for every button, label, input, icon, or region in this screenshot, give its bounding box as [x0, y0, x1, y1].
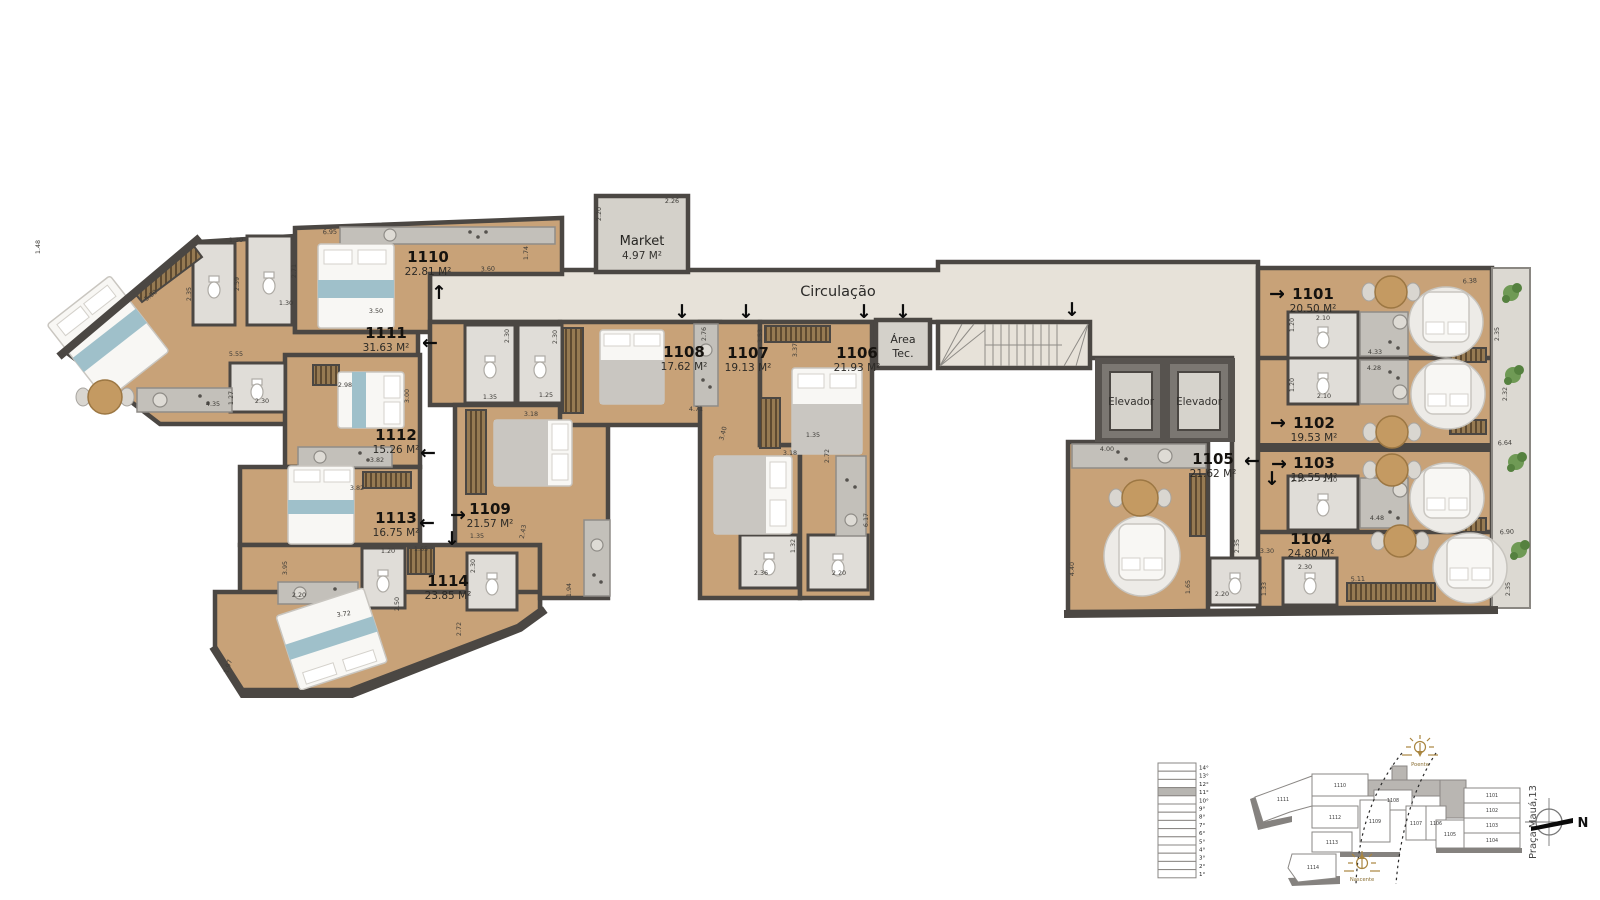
dimension-label: 4.71: [689, 405, 703, 413]
up-arrow: ↑: [431, 282, 447, 304]
dimension-label: 3.18: [783, 449, 797, 457]
unit-area-1102: 19.53 M²: [1291, 432, 1338, 444]
sun-nascente-label: Nascente: [1350, 877, 1374, 883]
staircase: [938, 322, 1090, 368]
unit-area-1105: 21.62 M²: [1190, 468, 1237, 480]
round-bed-1103: [1410, 463, 1484, 533]
unit-area-1113: 16.75 M²: [373, 527, 420, 539]
keyplan-unit-1108: 1108: [1387, 798, 1399, 804]
dimension-label: 2.76: [700, 327, 708, 341]
unit-number-1106: 1106: [836, 344, 878, 362]
dimension-label: 2.26: [665, 197, 679, 205]
down-arrow: ↓: [674, 301, 690, 323]
dimension-label: 2.20: [1215, 590, 1229, 598]
dimension-label: 4.28: [1367, 364, 1381, 372]
unit-area-1109: 21.57 M²: [467, 518, 514, 530]
dimension-label: 4.40: [1068, 562, 1076, 576]
dimension-label: 1.35: [483, 393, 497, 401]
area-tec-label-line2: Tec.: [891, 347, 913, 360]
dimension-label: 1.25: [539, 391, 553, 399]
unit-number-1102: 1102: [1293, 414, 1335, 432]
dimension-label: 2.20: [292, 591, 306, 599]
dimension-label: 2.30: [1298, 563, 1312, 571]
dimension-label: 1.30: [279, 299, 293, 307]
floor-row-label-5°: 5°: [1199, 839, 1205, 845]
keyplan-unit-1106: 1106: [1430, 821, 1442, 827]
left-arrow: ←: [1244, 450, 1260, 472]
bed-1106: [792, 368, 862, 454]
unit-area-1108: 17.62 M²: [661, 361, 708, 373]
keyplan-unit-1101: 1101: [1486, 793, 1498, 799]
dimension-label: 6.64: [1498, 439, 1513, 448]
unit-number-1103: 1103: [1293, 454, 1335, 472]
dimension-label: 2.71: [290, 264, 298, 278]
dimension-label: 2.10: [1317, 392, 1331, 400]
keyplan-unit-1107: 1107: [1410, 821, 1422, 827]
market-area-label: 4.97 M²: [622, 250, 662, 262]
compass-north-label: N: [1578, 816, 1589, 831]
dimension-label: 4.00: [1100, 445, 1114, 453]
dimension-label: 2.10: [1316, 314, 1330, 322]
floor-row-label-8°: 8°: [1199, 815, 1205, 821]
elevator-label-1: Elevador: [1108, 396, 1155, 408]
dimension-label: 3.37: [791, 343, 799, 357]
right-arrow: →: [450, 504, 466, 526]
floor-row-label-13°: 13°: [1199, 774, 1209, 780]
down-arrow: ↓: [856, 301, 872, 323]
unit-area-1107: 19.13 M²: [725, 362, 772, 374]
dimension-label: 1.20: [381, 547, 395, 555]
floor-row-8°: [1158, 812, 1196, 820]
dimension-label: 6.17: [862, 513, 870, 527]
floor-plan-page: 111022.81 M²111131.63 M²111215.26 M²1113…: [0, 0, 1600, 900]
dimension-label: 3.18: [524, 410, 538, 418]
dimension-label: 2.32: [1501, 387, 1509, 401]
round-bed-1102: [1411, 359, 1485, 429]
dimension-label: 3.82: [350, 484, 364, 492]
down-arrow: ↓: [895, 301, 911, 323]
dimension-label: 2.98: [338, 381, 352, 389]
floor-row-2°: [1158, 861, 1196, 869]
dimension-label: 1.65: [414, 545, 428, 553]
floor-row-10°: [1158, 796, 1196, 804]
circulation-label: Circulação: [800, 284, 876, 300]
keyplan-unit-1103: 1103: [1486, 823, 1498, 829]
floor-row-label-3°: 3°: [1199, 856, 1205, 862]
unit-number-1113: 1113: [375, 509, 417, 527]
dimension-label: 2.20: [595, 207, 603, 221]
left-arrow: ←: [422, 332, 438, 354]
floor-row-14°: [1158, 763, 1196, 771]
dimension-label: 1.48: [34, 240, 42, 254]
dimension-label: 2.10: [1323, 476, 1337, 484]
floor-plan-drawing: 111022.81 M²111131.63 M²111215.26 M²1113…: [0, 0, 1600, 900]
floor-row-label-2°: 2°: [1199, 864, 1205, 870]
floor-row-label-11°: 11°: [1199, 790, 1209, 796]
dimension-label: 2.35: [1233, 539, 1241, 553]
dimension-label: 3.60: [481, 265, 496, 274]
dimension-label: 2.10: [1291, 476, 1305, 484]
floor-row-label-1°: 1°: [1199, 872, 1205, 878]
unit-area-1114: 23.85 M²: [425, 590, 472, 602]
floor-stack: 14°13°12°11°10°9°8°7°6°5°4°3°2°1°: [1158, 763, 1209, 878]
dimension-label: 3.30: [1260, 547, 1274, 555]
down-arrow: ↓: [738, 301, 754, 323]
unit-number-1109: 1109: [469, 500, 511, 518]
floor-row-7°: [1158, 820, 1196, 828]
right-arrow: →: [1270, 412, 1286, 434]
dimension-label: 1.20: [1288, 318, 1296, 332]
keyplan: [1250, 753, 1522, 886]
keyplan-unit-1102: 1102: [1486, 808, 1498, 814]
floor-row-9°: [1158, 804, 1196, 812]
floor-row-label-6°: 6°: [1199, 831, 1205, 837]
floor-row-3°: [1158, 853, 1196, 861]
keyplan-unit-1112: 1112: [1329, 815, 1341, 821]
dimension-label: 3.50: [369, 307, 383, 315]
unit-number-1112: 1112: [375, 426, 417, 444]
dimension-label: 5.11: [1351, 575, 1366, 584]
unit-area-1112: 15.26 M²: [373, 444, 420, 456]
unit-area-1111: 31.63 M²: [363, 342, 410, 354]
dimension-label: 1.32: [789, 539, 797, 553]
dimension-label: 3.82: [370, 456, 384, 464]
dimension-label: 2.35: [1504, 582, 1512, 596]
market-label: Market: [620, 234, 665, 249]
dimension-label: 2.30: [255, 397, 269, 405]
area-tec-label-line1: Área: [890, 333, 915, 346]
keyplan-unit-1109: 1109: [1369, 819, 1381, 825]
dimension-label: 2.72: [455, 622, 463, 636]
dimension-label: 6.95: [323, 228, 338, 236]
unit-number-1104: 1104: [1290, 530, 1332, 548]
floor-row-11°: [1158, 788, 1196, 796]
unit-number-1107: 1107: [727, 344, 769, 362]
bed-1109: [494, 420, 572, 486]
floor-row-13°: [1158, 771, 1196, 779]
dimension-label: 1.94: [565, 583, 573, 597]
dimension-label: 2.30: [551, 330, 559, 344]
keyplan-unit-1104: 1104: [1486, 838, 1498, 844]
floor-row-label-9°: 9°: [1199, 807, 1205, 813]
dimension-label: 1.27: [227, 391, 235, 405]
dimension-label: 1.33: [1260, 582, 1268, 596]
dimension-label: 2.72: [823, 449, 831, 463]
dimension-label: 4.33: [1368, 348, 1382, 356]
floor-row-label-4°: 4°: [1199, 848, 1205, 854]
left-arrow: ←: [420, 442, 436, 464]
floor-row-label-10°: 10°: [1199, 798, 1209, 804]
dimension-label: 1.65: [1184, 580, 1192, 594]
dimension-label: 2.35: [1493, 327, 1501, 341]
round-bed-1104: [1433, 533, 1507, 603]
dimension-label: 2.30: [503, 329, 511, 343]
keyplan-unit-1114: 1114: [1307, 865, 1319, 871]
bed-1113: [288, 466, 354, 544]
bed-1107: [714, 456, 792, 534]
unit-number-1105: 1105: [1192, 450, 1234, 468]
bed-1110: [318, 244, 394, 328]
down-arrow: ↓: [1064, 299, 1080, 321]
dimension-label: 1.20: [1288, 378, 1296, 392]
dimension-label: 2.50: [393, 597, 401, 611]
dimension-label: 6.90: [1500, 528, 1515, 537]
dimension-label: 2.35: [185, 287, 193, 301]
dimension-label: 5.55: [229, 350, 243, 358]
round-bed-1101: [1409, 287, 1483, 357]
unit-area-1104: 24.80 M²: [1288, 548, 1335, 560]
unit-area-1106: 21.93 M²: [834, 362, 881, 374]
down-arrow: ↓: [444, 528, 460, 550]
unit-number-1110: 1110: [407, 248, 449, 266]
dimension-label: 4.48: [1370, 514, 1384, 522]
keyplan-unit-1113: 1113: [1326, 840, 1338, 846]
unit-number-1114: 1114: [427, 572, 469, 590]
bed-1108: [600, 330, 664, 404]
dimension-label: 2.36: [754, 569, 768, 577]
elevator-label-2: Elevador: [1176, 396, 1223, 408]
dimension-label: 1.35: [806, 431, 820, 439]
keyplan-unit-1105: 1105: [1444, 832, 1456, 838]
floor-row-label-7°: 7°: [1199, 823, 1205, 829]
dimension-label: 1.35: [470, 532, 484, 540]
dimension-label: 3.53: [756, 329, 764, 343]
unit-number-1111: 1111: [365, 324, 407, 342]
left-arrow: ←: [419, 512, 435, 534]
dimension-label: 1.30: [229, 236, 243, 244]
floor-row-5°: [1158, 837, 1196, 845]
floor-row-label-12°: 12°: [1199, 782, 1209, 788]
dimension-label: 4.35: [206, 400, 220, 408]
unit-number-1108: 1108: [663, 343, 705, 361]
down-arrow: ↓: [1264, 468, 1280, 490]
dimension-label: 2.30: [469, 559, 477, 573]
keyplan-unit-1111: 1111: [1277, 797, 1289, 803]
unit-area-1110: 22.81 M²: [405, 266, 452, 278]
keyplan-unit-1110: 1110: [1334, 783, 1346, 789]
dimension-label: 2.59: [233, 277, 241, 291]
dimension-label: 1.74: [522, 246, 530, 260]
sun-poente-icon: [1402, 735, 1438, 757]
dimension-label: 3.00: [403, 389, 411, 403]
dimension-label: 2.20: [832, 569, 846, 577]
floor-row-label-14°: 14°: [1199, 766, 1209, 772]
floor-row-4°: [1158, 845, 1196, 853]
unit-number-1101: 1101: [1292, 285, 1334, 303]
dimension-label: 3.95: [281, 561, 289, 575]
dimension-label: 6.38: [1462, 277, 1477, 286]
floor-row-6°: [1158, 829, 1196, 837]
floor-row-12°: [1158, 779, 1196, 787]
round-bed-1105: [1104, 516, 1180, 596]
right-arrow: →: [1269, 283, 1285, 305]
sun-poente-label: Poente: [1411, 762, 1429, 768]
floor-row-1°: [1158, 870, 1196, 878]
legend: 14°13°12°11°10°9°8°7°6°5°4°3°2°1°: [1158, 735, 1588, 886]
